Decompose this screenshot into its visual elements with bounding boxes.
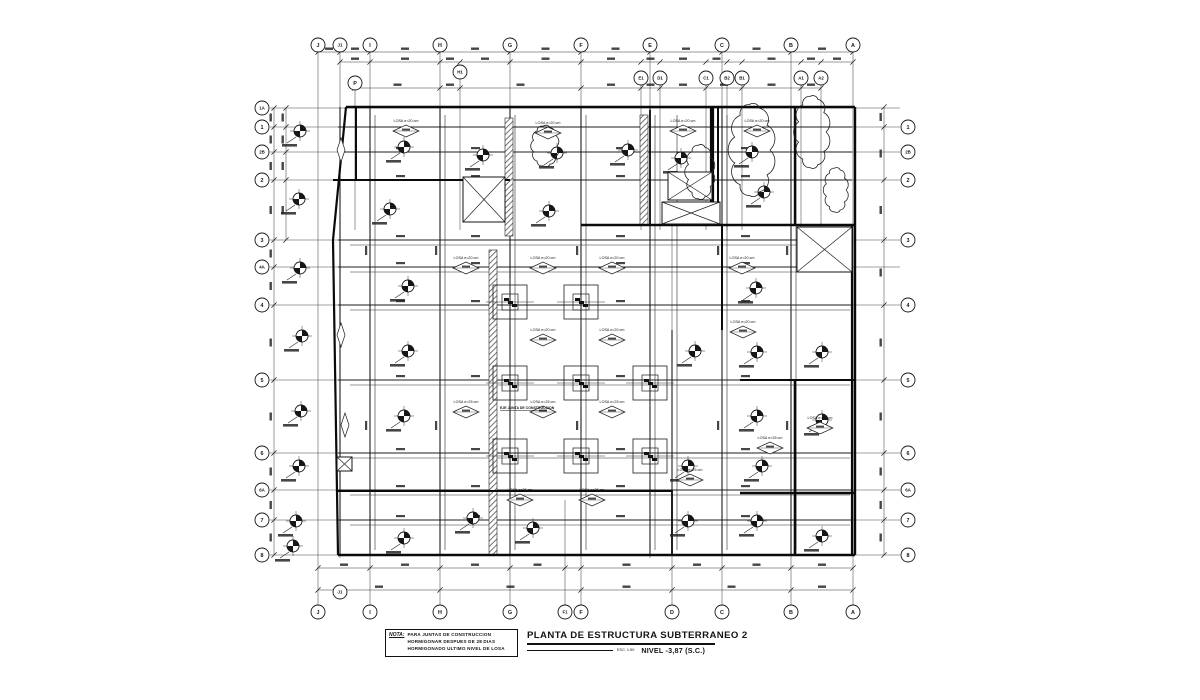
slab-tag-smudge xyxy=(462,410,470,412)
column-quadrant xyxy=(402,351,408,357)
opening-x xyxy=(662,202,720,224)
grid-bubble-label: 2 xyxy=(261,178,264,184)
dim-text-smudge xyxy=(282,136,284,144)
column-quadrant xyxy=(816,352,822,358)
dim-text-smudge xyxy=(818,564,826,566)
dim-text-smudge xyxy=(446,84,454,86)
grid-bubble-label: 4A xyxy=(259,265,265,270)
column-quadrant xyxy=(549,205,555,211)
column-label-smudge xyxy=(744,479,759,482)
footing-step xyxy=(652,385,657,388)
column-quadrant xyxy=(756,282,762,288)
beam-label-smudge xyxy=(576,246,578,255)
grid-bubble-label: D1 xyxy=(657,76,663,81)
grid-bubble-label: P xyxy=(353,81,357,87)
grid-bubble-label: 6 xyxy=(261,451,264,457)
grid-bubble-J1: J1 xyxy=(333,585,347,599)
column-symbol xyxy=(283,401,311,427)
slab-tag-smudge xyxy=(766,446,774,448)
dim-text-smudge xyxy=(880,113,882,121)
opening-x xyxy=(337,457,352,471)
column-quadrant xyxy=(751,416,757,422)
beam-label-smudge xyxy=(616,235,625,237)
dim-text-smudge xyxy=(542,48,550,50)
column-symbol xyxy=(539,143,567,169)
column-quadrant xyxy=(473,512,479,518)
grid-bubble-label: B xyxy=(789,43,793,49)
level-diamond xyxy=(337,138,345,162)
dim-text-smudge xyxy=(270,162,272,170)
column-leader xyxy=(751,198,760,204)
grid-bubble-6: 6 xyxy=(255,446,269,460)
dim-text-smudge xyxy=(542,58,550,60)
slab-tag: LOSA e=20 cm xyxy=(453,256,479,274)
dim-text-smudge xyxy=(768,58,776,60)
column-label-smudge xyxy=(515,541,530,544)
dim-text-smudge xyxy=(471,48,479,50)
column-leader xyxy=(286,205,295,211)
footing-step xyxy=(583,304,588,307)
column-quadrant xyxy=(628,144,634,150)
column-symbol xyxy=(284,326,312,352)
dim-text-smudge xyxy=(534,564,542,566)
slab-tag-smudge xyxy=(539,338,547,340)
slab-tag-label: LOSA e=25 cm xyxy=(758,436,783,440)
column-leader xyxy=(739,158,748,164)
dim-text-smudge xyxy=(679,58,687,60)
column-symbol xyxy=(386,406,414,432)
grid-bubble-J: J xyxy=(311,605,325,619)
beam-label-smudge xyxy=(396,175,405,177)
dim-text-smudge xyxy=(753,48,761,50)
opening-x xyxy=(463,177,505,222)
grid-bubble-P: P xyxy=(348,76,362,90)
slab-tag-label: LOSA e=25 cm xyxy=(580,488,605,492)
grid-bubble-label: 6A xyxy=(905,488,911,493)
dim-text-smudge xyxy=(401,564,409,566)
grid-bubble-H1: H1 xyxy=(453,65,467,79)
column-leader xyxy=(286,472,295,478)
grid-bubble-2: 2 xyxy=(901,173,915,187)
column-quadrant xyxy=(750,288,756,294)
slab-tag: LOSA e=25 cm xyxy=(507,488,533,506)
footing-step xyxy=(504,298,509,301)
dim-text-smudge xyxy=(607,84,615,86)
level-diamond xyxy=(341,413,349,437)
grid-bubble-4A: 4A xyxy=(255,260,269,274)
dim-text-smudge xyxy=(612,48,620,50)
column-symbol xyxy=(390,341,418,367)
column-leader xyxy=(744,422,753,428)
column-leader xyxy=(520,534,529,540)
slab-tag-smudge xyxy=(816,426,824,428)
slab-tag-smudge xyxy=(516,498,524,500)
footing-step xyxy=(508,301,513,304)
column-label-smudge xyxy=(804,549,819,552)
column-symbol xyxy=(386,137,414,163)
column-label-smudge xyxy=(275,559,290,562)
column-label-smudge xyxy=(804,433,819,436)
footing-symbol xyxy=(557,432,605,480)
column-label-smudge xyxy=(738,301,753,304)
column-symbol xyxy=(390,276,418,302)
slab-tag-label: LOSA e=20 cm xyxy=(730,256,755,260)
column-quadrant xyxy=(296,336,302,342)
column-quadrant xyxy=(822,346,828,352)
grid-bubble-label: D xyxy=(670,610,674,616)
beam-label-smudge xyxy=(741,515,750,517)
column-symbol xyxy=(804,342,832,368)
grid-bubble-4: 4 xyxy=(901,298,915,312)
column-quadrant xyxy=(483,149,489,155)
column-label-smudge xyxy=(610,163,625,166)
dim-text-smudge xyxy=(807,84,815,86)
title-subrow: ESC. 1:50 NIVEL -3,87 (S.C.) xyxy=(527,646,715,655)
column-label-smudge xyxy=(372,222,387,225)
grid-bubble-C: C xyxy=(715,38,729,52)
title-rule xyxy=(527,650,613,651)
dim-text-smudge xyxy=(351,58,359,60)
grid-bubble-D: D xyxy=(665,605,679,619)
footing-step xyxy=(579,455,584,458)
column-label-smudge xyxy=(670,534,685,537)
footing-step xyxy=(648,382,653,385)
column-quadrant xyxy=(681,152,687,158)
slab-tag-label: LOSA e=20 cm xyxy=(394,119,419,123)
column-quadrant xyxy=(296,515,302,521)
column-leader xyxy=(391,153,400,159)
column-quadrant xyxy=(675,158,681,164)
grid-bubble-label: 6 xyxy=(907,451,910,457)
column-symbol xyxy=(455,508,483,534)
slab-tag: LOSA e=20 cm xyxy=(393,119,419,137)
column-label-smudge xyxy=(386,429,401,432)
dim-text-smudge xyxy=(270,413,272,421)
column-quadrant xyxy=(477,155,483,161)
grid-bubble-C1: C1 xyxy=(699,71,713,85)
grid-bubble-6A: 6A xyxy=(901,483,915,497)
dim-text-smudge xyxy=(807,58,815,60)
beam-label-smudge xyxy=(365,246,367,255)
dim-text-smudge xyxy=(325,48,333,50)
column-quadrant xyxy=(293,199,299,205)
column-label-smudge xyxy=(677,364,692,367)
slab-tag: LOSA e=20 cm xyxy=(730,320,756,338)
column-leader xyxy=(395,292,404,298)
slab-tag-label: LOSA e=20 cm xyxy=(600,256,625,260)
grid-bubble-label: 2B xyxy=(259,150,265,155)
footing-step xyxy=(579,301,584,304)
column-quadrant xyxy=(752,146,758,152)
slab-tag-label: LOSA e=25 cm xyxy=(531,400,556,404)
slab-tag-smudge xyxy=(686,478,694,480)
grid-bubble-B: B xyxy=(784,38,798,52)
slab-tag-smudge xyxy=(588,498,596,500)
grid-bubble-I: I xyxy=(363,38,377,52)
slab-tag-label: LOSA e=25 cm xyxy=(600,400,625,404)
column-leader xyxy=(377,215,386,221)
column-label-smudge xyxy=(283,424,298,427)
column-symbol xyxy=(281,456,309,482)
column-quadrant xyxy=(695,345,701,351)
grid-bubble-8: 8 xyxy=(901,548,915,562)
column-quadrant xyxy=(682,521,688,527)
footing-step xyxy=(575,298,580,301)
dim-text-smudge xyxy=(768,84,776,86)
grid-bubble-label: 5 xyxy=(261,378,264,384)
column-label-smudge xyxy=(284,349,299,352)
column-quadrant xyxy=(762,460,768,466)
footing-step xyxy=(512,458,517,461)
column-quadrant xyxy=(390,203,396,209)
plan-level: NIVEL -3,87 (S.C.) xyxy=(641,646,705,655)
slab-tag: LOSA e=25 cm xyxy=(579,488,605,506)
column-quadrant xyxy=(408,345,414,351)
column-label-smudge xyxy=(746,205,761,208)
column-leader xyxy=(287,137,296,143)
column-symbol xyxy=(739,342,767,368)
dim-text-smudge xyxy=(607,58,615,60)
column-leader xyxy=(809,542,818,548)
beam-label-smudge xyxy=(471,262,480,264)
column-quadrant xyxy=(398,416,404,422)
grid-bubble-2B: 2B xyxy=(255,145,269,159)
grid-bubble-4: 4 xyxy=(255,298,269,312)
column-symbol xyxy=(282,258,310,284)
column-quadrant xyxy=(751,352,757,358)
grid-bubble-D1: D1 xyxy=(653,71,667,85)
beam-label-smudge xyxy=(365,421,367,430)
slab-tag-label: LOSA e=25 cm xyxy=(808,416,833,420)
column-leader xyxy=(289,342,298,348)
grid-bubble-H: H xyxy=(433,38,447,52)
beam-label-smudge xyxy=(786,421,788,430)
grid-bubble-E: E xyxy=(643,38,657,52)
column-quadrant xyxy=(302,330,308,336)
grid-bubble-1: 1 xyxy=(901,120,915,134)
dim-text-smudge xyxy=(880,150,882,158)
grid-bubble-2B: 2B xyxy=(901,145,915,159)
note-line-1: PARA JUNTAS DE CONSTRUCCION xyxy=(407,632,504,639)
column-symbol xyxy=(677,341,705,367)
dim-text-smudge xyxy=(818,586,826,588)
slab-tag-label: LOSA e=25 cm xyxy=(454,400,479,404)
column-symbol xyxy=(275,536,303,562)
column-quadrant xyxy=(294,268,300,274)
grid-bubble-label: 4 xyxy=(907,303,910,309)
slab-tag: LOSA e=20 cm xyxy=(599,328,625,346)
beam-label-smudge xyxy=(616,448,625,450)
slab-tag: LOSA e=20 cm xyxy=(729,256,755,274)
column-symbol xyxy=(278,511,306,537)
grid-bubble-label: H xyxy=(438,610,442,616)
dim-text-smudge xyxy=(446,58,454,60)
dim-text-smudge xyxy=(270,339,272,347)
grid-bubble-label: A1 xyxy=(798,76,804,81)
column-quadrant xyxy=(543,211,549,217)
grid-bubble-label: E xyxy=(648,43,652,49)
slab-tag: LOSA e=25 cm xyxy=(757,436,783,454)
grid-bubble-C: C xyxy=(715,605,729,619)
column-symbol xyxy=(734,142,762,168)
grid-bubble-B: B xyxy=(784,605,798,619)
column-quadrant xyxy=(293,540,299,546)
column-symbol xyxy=(372,199,400,225)
footing-step xyxy=(575,379,580,382)
grid-bubble-label: J1 xyxy=(338,43,343,48)
footing-step xyxy=(512,304,517,307)
column-quadrant xyxy=(404,141,410,147)
grid-bubble-5: 5 xyxy=(901,373,915,387)
dim-text-smudge xyxy=(623,564,631,566)
column-symbol xyxy=(738,278,766,304)
column-quadrant xyxy=(756,466,762,472)
dim-text-smudge xyxy=(375,586,383,588)
grid-bubble-5: 5 xyxy=(255,373,269,387)
column-symbol xyxy=(281,189,309,215)
column-leader xyxy=(395,357,404,363)
opening-x xyxy=(668,172,712,200)
slab-tag-label: LOSA e=20 cm xyxy=(536,121,561,125)
grid-bubble-label: H1 xyxy=(457,70,463,75)
column-quadrant xyxy=(816,536,822,542)
column-quadrant xyxy=(300,262,306,268)
grid-bubble-label: 5 xyxy=(907,378,910,384)
beam-label-smudge xyxy=(396,262,405,264)
note-label: NOTA: xyxy=(389,632,404,638)
footing-symbol xyxy=(626,432,674,480)
column-quadrant xyxy=(533,522,539,528)
column-quadrant xyxy=(689,351,695,357)
dim-text-smudge xyxy=(270,114,272,122)
beam-label-smudge xyxy=(396,375,405,377)
column-quadrant xyxy=(301,405,307,411)
grid-lines-layer xyxy=(270,52,900,605)
column-symbol xyxy=(746,182,774,208)
slab-tag-label: LOSA e=20 cm xyxy=(671,119,696,123)
column-symbol xyxy=(739,511,767,537)
grid-bubble-1: 1 xyxy=(255,120,269,134)
dim-text-smudge xyxy=(880,413,882,421)
grid-bubble-label: 2B xyxy=(905,150,911,155)
dim-text-smudge xyxy=(282,162,284,170)
column-quadrant xyxy=(757,346,763,352)
slab-tag-smudge xyxy=(402,129,410,131)
note-line-2: HORMIGONAR DESPUES DE 28 DIAS xyxy=(407,639,504,646)
grid-bubble-label: G xyxy=(508,610,512,616)
footing-symbol xyxy=(486,278,534,326)
column-quadrant xyxy=(293,466,299,472)
plan-title: PLANTA DE ESTRUCTURA SUBTERRANEO 2 xyxy=(527,630,715,645)
slab-tag-smudge xyxy=(738,266,746,268)
slab-tag: LOSA e=20 cm xyxy=(530,328,556,346)
footing-step xyxy=(652,458,657,461)
slab-tag: LOSA e=25 cm xyxy=(599,400,625,418)
grid-bubble-B2: B2 xyxy=(720,71,734,85)
column-label-smudge xyxy=(739,429,754,432)
grid-bubble-F: F xyxy=(574,38,588,52)
beam-label-smudge xyxy=(786,246,788,255)
slab-tag-label: LOSA e=20 cm xyxy=(600,328,625,332)
joint-axis-label: EJE JUNTA DE CONSTRUCCION xyxy=(500,406,555,410)
grid-bubble-label: 1A xyxy=(259,106,265,111)
slab-tag: LOSA e=20 cm xyxy=(744,119,770,137)
slab-tag: LOSA e=25 cm xyxy=(453,400,479,418)
column-label-smudge xyxy=(282,281,297,284)
dim-text-smudge xyxy=(728,586,736,588)
column-quadrant xyxy=(527,528,533,534)
column-quadrant xyxy=(299,460,305,466)
grid-bubble-B1: B1 xyxy=(735,71,749,85)
column-quadrant xyxy=(295,411,301,417)
footing-symbol xyxy=(557,278,605,326)
column-quadrant xyxy=(467,518,473,524)
beam-label-smudge xyxy=(741,485,750,487)
slab-tag-smudge xyxy=(608,410,616,412)
beam-label-smudge xyxy=(396,235,405,237)
footing-step xyxy=(504,452,509,455)
dim-text-smudge xyxy=(818,48,826,50)
beam-label-smudge xyxy=(616,175,625,177)
dim-text-smudge xyxy=(282,114,284,122)
column-leader xyxy=(668,164,677,170)
slab-tag-label: LOSA e=20 cm xyxy=(531,328,556,332)
dim-text-smudge xyxy=(833,58,841,60)
dim-text-smudge xyxy=(481,58,489,60)
beam-label-smudge xyxy=(471,147,480,149)
beam-label-smudge xyxy=(741,448,750,450)
grid-bubble-A2: A2 xyxy=(814,71,828,85)
beam-label-smudge xyxy=(576,421,578,430)
dim-text-smudge xyxy=(471,564,479,566)
column-leader xyxy=(749,472,758,478)
grid-bubble-label: G xyxy=(508,43,512,49)
grid-bubble-J: J xyxy=(311,38,325,52)
note-text: PARA JUNTAS DE CONSTRUCCION HORMIGONAR D… xyxy=(407,632,504,653)
grid-bubble-label: H xyxy=(438,43,442,49)
note-line-3: HORMIGONADO ULTIMO NIVEL DE LOSA xyxy=(407,646,504,653)
beam-label-smudge xyxy=(616,375,625,377)
column-leader xyxy=(536,217,545,223)
grid-bubble-label: 2 xyxy=(907,178,910,184)
column-symbol xyxy=(739,406,767,432)
slab-tag-smudge xyxy=(462,266,470,268)
slab-tag-smudge xyxy=(753,129,761,131)
column-quadrant xyxy=(287,546,293,552)
grid-bubble-3: 3 xyxy=(901,233,915,247)
beam-label-smudge xyxy=(717,246,719,255)
column-label-smudge xyxy=(531,224,546,227)
grid-bubble-6: 6 xyxy=(901,446,915,460)
grid-bubble-2: 2 xyxy=(255,173,269,187)
column-label-smudge xyxy=(739,534,754,537)
grid-bubble-label: J xyxy=(317,43,320,49)
grid-bubble-label: 8 xyxy=(907,553,910,559)
column-quadrant xyxy=(751,521,757,527)
footing-symbol xyxy=(486,432,534,480)
dim-text-smudge xyxy=(880,468,882,476)
beam-label-smudge xyxy=(396,448,405,450)
grid-bubble-label: A xyxy=(851,43,855,49)
column-quadrant xyxy=(384,209,390,215)
grid-bubble-7: 7 xyxy=(901,513,915,527)
grid-bubble-label: 1 xyxy=(261,125,264,131)
column-quadrant xyxy=(688,515,694,521)
grid-bubble-H: H xyxy=(433,605,447,619)
dim-text-smudge xyxy=(623,586,631,588)
column-quadrant xyxy=(402,286,408,292)
grid-bubble-A: A xyxy=(846,605,860,619)
